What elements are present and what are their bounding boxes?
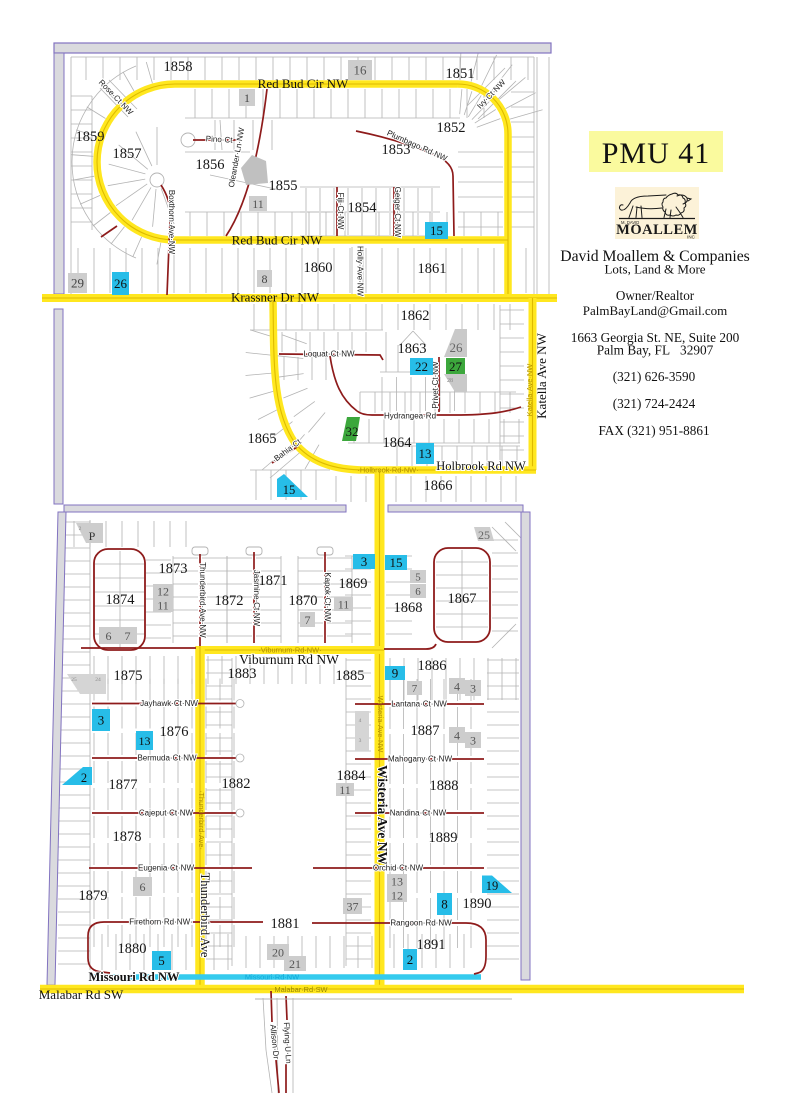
- svg-text:Nandina·Ct·NW: Nandina·Ct·NW: [390, 809, 447, 818]
- svg-text:15: 15: [430, 223, 443, 238]
- svg-text:P: P: [89, 529, 96, 543]
- svg-text:1889: 1889: [429, 830, 458, 846]
- svg-text:Holly·Ave·NW: Holly·Ave·NW: [356, 246, 365, 297]
- svg-text:3: 3: [361, 554, 368, 569]
- svg-text:FAX (321) 951-8861: FAX (321) 951-8861: [598, 423, 709, 438]
- svg-text:1852: 1852: [437, 120, 466, 136]
- svg-text:13: 13: [391, 874, 403, 888]
- svg-text:1888: 1888: [430, 778, 459, 794]
- svg-text:1879: 1879: [79, 888, 108, 904]
- svg-text:(321) 724-2424: (321) 724-2424: [613, 396, 696, 411]
- svg-text:Thunderbird Ave: Thunderbird Ave: [198, 873, 212, 958]
- svg-text:1870: 1870: [289, 593, 318, 609]
- svg-text:Lantana·Ct·NW: Lantana·Ct·NW: [391, 700, 447, 709]
- svg-text:1860: 1860: [304, 260, 333, 276]
- svg-text:Geiger·Ct·NW: Geiger·Ct·NW: [393, 187, 402, 238]
- svg-text:26: 26: [114, 276, 128, 291]
- svg-text:Wisteria Ave NW: Wisteria Ave NW: [375, 765, 390, 865]
- svg-text:1: 1: [244, 91, 250, 105]
- svg-text:4: 4: [359, 718, 362, 724]
- svg-text:1875: 1875: [114, 668, 143, 684]
- svg-text:7: 7: [125, 629, 131, 643]
- svg-text:Loquat·Ct·NW: Loquat·Ct·NW: [303, 350, 355, 359]
- svg-text:Wisteria·Ave·NW: Wisteria·Ave·NW: [376, 696, 385, 753]
- svg-text:2: 2: [407, 952, 414, 967]
- svg-text:1890: 1890: [463, 896, 492, 912]
- svg-text:7: 7: [305, 613, 311, 627]
- svg-text:1859: 1859: [76, 129, 105, 145]
- svg-text:1876: 1876: [160, 724, 189, 740]
- svg-text:Firethorn·Rd·NW·: Firethorn·Rd·NW·: [129, 918, 193, 927]
- svg-text:Holbrook Rd NW: Holbrook Rd NW: [436, 459, 526, 473]
- svg-text:1887: 1887: [411, 723, 440, 739]
- svg-text:1878: 1878: [113, 829, 142, 845]
- svg-text:5: 5: [415, 572, 421, 584]
- svg-text:11: 11: [252, 197, 264, 211]
- svg-text:24: 24: [95, 677, 101, 683]
- svg-text:11: 11: [157, 598, 169, 612]
- svg-text:Thunderbird·Ave·NW: Thunderbird·Ave·NW: [198, 562, 207, 638]
- svg-text:1873: 1873: [159, 561, 188, 577]
- svg-text:Mahogany·Ct·NW: Mahogany·Ct·NW: [388, 755, 452, 764]
- svg-text:1869: 1869: [339, 576, 368, 592]
- svg-text:Malabar Rd SW: Malabar Rd SW: [39, 987, 124, 1002]
- svg-text:1882: 1882: [222, 776, 251, 792]
- svg-text:PMU 41: PMU 41: [602, 137, 711, 170]
- svg-text:15: 15: [283, 483, 296, 497]
- svg-text:Viburnum Rd NW: Viburnum Rd NW: [239, 652, 339, 667]
- svg-text:1854: 1854: [348, 200, 378, 216]
- svg-text:6: 6: [140, 880, 146, 894]
- svg-text:3: 3: [359, 738, 362, 744]
- svg-text:Jayhawk·Ct·NW: Jayhawk·Ct·NW: [140, 699, 198, 708]
- svg-text:Owner/Realtor: Owner/Realtor: [616, 288, 695, 303]
- svg-text:8: 8: [441, 897, 448, 912]
- svg-text:32: 32: [346, 424, 359, 439]
- svg-text:Krassner Dr NW: Krassner Dr NW: [231, 290, 320, 305]
- svg-text:Missouri Rd NW: Missouri Rd NW: [89, 970, 180, 984]
- svg-text:1891: 1891: [417, 937, 446, 953]
- svg-text:16: 16: [354, 63, 368, 78]
- svg-text:3: 3: [470, 681, 476, 695]
- svg-text:Boxthorn·Ave·NW: Boxthorn·Ave·NW: [167, 190, 176, 255]
- svg-text:Katella·Ave·NW: Katella·Ave·NW: [525, 364, 534, 416]
- svg-text:(321) 626-3590: (321) 626-3590: [613, 369, 696, 384]
- svg-text:Rangoon·Rd·NW: Rangoon·Rd·NW: [390, 919, 452, 928]
- svg-text:Palm Bay, FL 32907: Palm Bay, FL 32907: [597, 343, 714, 358]
- svg-text:5: 5: [158, 953, 165, 968]
- svg-text:1863: 1863: [398, 341, 427, 357]
- svg-text:12: 12: [391, 888, 403, 902]
- svg-text:Red Bud Cir NW: Red Bud Cir NW: [232, 233, 323, 248]
- svg-text:1855: 1855: [269, 178, 298, 194]
- svg-text:28: 28: [447, 378, 453, 384]
- svg-text:2: 2: [79, 526, 82, 532]
- svg-text:1851: 1851: [446, 66, 475, 82]
- svg-text:15: 15: [390, 555, 403, 570]
- svg-text:Eugenia·Ct·NW: Eugenia·Ct·NW: [138, 864, 194, 873]
- svg-text:1885: 1885: [336, 668, 365, 684]
- svg-text:1883: 1883: [228, 666, 257, 682]
- svg-text:37: 37: [347, 899, 359, 913]
- svg-text:26: 26: [450, 340, 464, 355]
- svg-text:Orchid·Ct·NW: Orchid·Ct·NW: [373, 864, 424, 873]
- svg-text:3: 3: [470, 733, 476, 747]
- svg-text:9: 9: [392, 666, 399, 681]
- svg-text:1886: 1886: [418, 658, 447, 674]
- svg-text:PalmBayLand@Gmail.com: PalmBayLand@Gmail.com: [583, 303, 727, 318]
- svg-text:·Holbrook·Rd·NW·: ·Holbrook·Rd·NW·: [357, 466, 418, 475]
- svg-text:Lots, Land & More: Lots, Land & More: [604, 262, 705, 277]
- svg-text:·Thunderbird·Ave·: ·Thunderbird·Ave·: [197, 790, 206, 850]
- svg-text:1856: 1856: [196, 157, 225, 173]
- svg-text:Missouri·Rd·NW: Missouri·Rd·NW: [245, 973, 299, 982]
- svg-text:Katella Ave NW: Katella Ave NW: [534, 332, 549, 418]
- svg-text:21: 21: [289, 957, 301, 971]
- svg-text:1874: 1874: [106, 592, 136, 608]
- svg-text:25: 25: [478, 528, 490, 542]
- svg-text:6: 6: [106, 629, 112, 643]
- svg-text:22: 22: [415, 359, 428, 374]
- svg-text:1884: 1884: [337, 768, 367, 784]
- svg-text:Cajeput·Ct·NW: Cajeput·Ct·NW: [139, 809, 194, 818]
- svg-text:12: 12: [157, 584, 169, 598]
- svg-text:1857: 1857: [113, 146, 142, 162]
- svg-text:20: 20: [272, 945, 284, 959]
- svg-text:1866: 1866: [424, 478, 453, 494]
- svg-text:1880: 1880: [118, 941, 147, 957]
- svg-text:19: 19: [486, 879, 499, 893]
- svg-text:1853: 1853: [382, 142, 411, 158]
- svg-text:Malabar·Rd·SW: Malabar·Rd·SW: [275, 985, 328, 994]
- svg-text:Bermuda·Ct·NW: Bermuda·Ct·NW: [137, 754, 197, 763]
- svg-text:3: 3: [98, 713, 105, 728]
- svg-text:27: 27: [449, 359, 463, 374]
- svg-text:25: 25: [71, 677, 77, 683]
- svg-text:Hydrangea·Rd: Hydrangea·Rd: [384, 412, 436, 421]
- svg-text:29: 29: [71, 276, 84, 291]
- svg-text:4: 4: [454, 728, 460, 742]
- svg-text:6: 6: [415, 586, 421, 598]
- svg-text:INC: INC: [687, 235, 696, 240]
- svg-text:11: 11: [339, 783, 351, 797]
- svg-text:13: 13: [419, 446, 432, 461]
- svg-text:1865: 1865: [248, 431, 277, 447]
- svg-text:4: 4: [454, 679, 460, 693]
- svg-text:Fiji·Ct·NW: Fiji·Ct·NW: [336, 193, 345, 230]
- svg-text:11: 11: [338, 597, 350, 611]
- svg-text:2: 2: [81, 771, 87, 785]
- svg-text:Kapok·Ct·NW: Kapok·Ct·NW: [323, 572, 332, 622]
- svg-text:1867: 1867: [448, 591, 477, 607]
- svg-text:13: 13: [139, 734, 151, 748]
- svg-text:1861: 1861: [418, 261, 447, 277]
- svg-text:1862: 1862: [401, 308, 430, 324]
- svg-text:7: 7: [412, 683, 418, 695]
- svg-text:1871: 1871: [259, 573, 288, 589]
- svg-text:1872: 1872: [215, 593, 244, 609]
- svg-text:Red Bud Cir NW: Red Bud Cir NW: [258, 76, 349, 91]
- svg-text:MOALLEM: MOALLEM: [616, 222, 698, 238]
- svg-text:1858: 1858: [164, 59, 193, 75]
- svg-text:8: 8: [262, 272, 268, 286]
- svg-text:1881: 1881: [271, 916, 300, 932]
- svg-text:1877: 1877: [109, 777, 138, 793]
- svg-text:Pino·Ct: Pino·Ct: [206, 134, 234, 144]
- svg-text:1864: 1864: [383, 435, 413, 451]
- svg-text:1868: 1868: [394, 600, 423, 616]
